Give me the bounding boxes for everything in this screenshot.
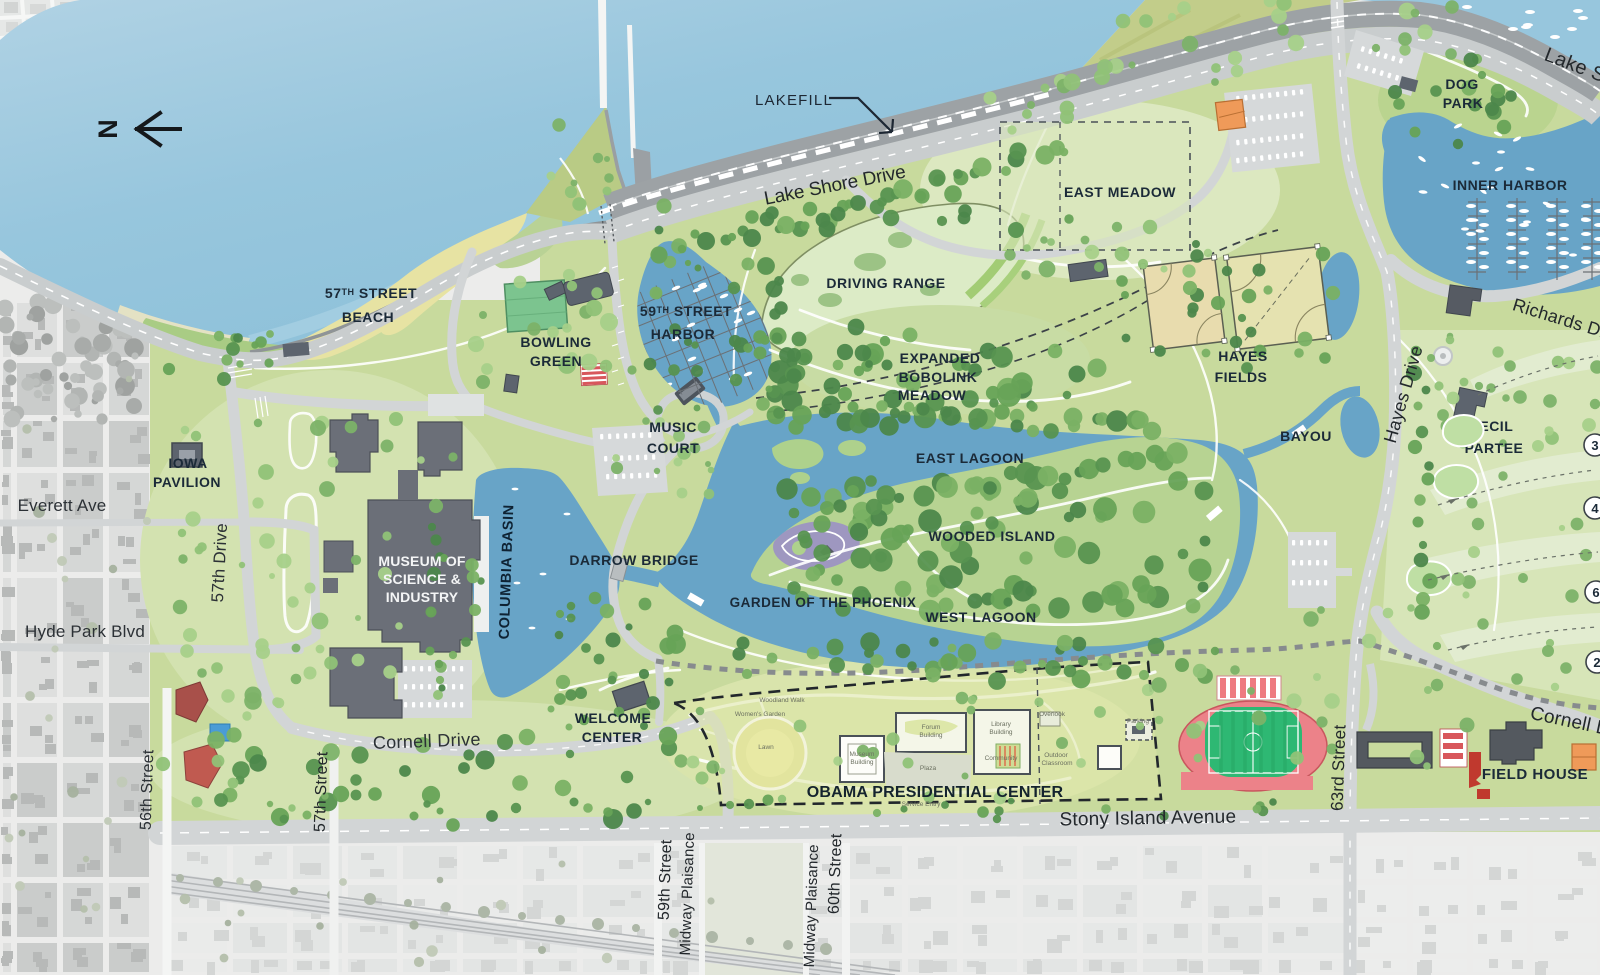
svg-text:BAYOU: BAYOU [1280, 428, 1332, 444]
svg-text:Building: Building [989, 729, 1013, 736]
svg-text:HARBOR: HARBOR [651, 326, 715, 342]
svg-text:EXPANDED: EXPANDED [900, 350, 981, 366]
svg-text:EAST LAGOON: EAST LAGOON [916, 450, 1024, 466]
svg-text:Everett Ave: Everett Ave [18, 496, 107, 515]
svg-text:WELCOME: WELCOME [575, 710, 652, 726]
svg-text:IOWA: IOWA [168, 455, 207, 471]
svg-text:LAKEFILL: LAKEFILL [755, 92, 833, 109]
svg-text:FIELDS: FIELDS [1215, 369, 1268, 385]
svg-text:6: 6 [1592, 585, 1599, 600]
svg-text:FIELD HOUSE: FIELD HOUSE [1482, 766, 1588, 783]
svg-text:3: 3 [1591, 438, 1598, 453]
svg-text:Women's Garden: Women's Garden [735, 711, 786, 718]
svg-text:CENTER: CENTER [582, 729, 643, 745]
svg-text:Lawn: Lawn [758, 744, 774, 751]
svg-text:BOWLING: BOWLING [520, 334, 591, 350]
svg-text:Woodland Walk: Woodland Walk [759, 697, 805, 704]
svg-text:Community: Community [985, 755, 1019, 762]
svg-text:Plaza: Plaza [920, 765, 937, 772]
svg-text:56th Street: 56th Street [138, 749, 158, 830]
svg-text:Classroom: Classroom [1041, 760, 1072, 767]
svg-text:BOBOLINK: BOBOLINK [899, 369, 978, 385]
svg-text:Museum: Museum [850, 751, 875, 758]
svg-text:MEADOW: MEADOW [898, 387, 967, 403]
svg-text:Overlook: Overlook [1039, 711, 1066, 718]
svg-text:WEST LAGOON: WEST LAGOON [925, 609, 1036, 625]
svg-text:PAVILION: PAVILION [153, 474, 221, 490]
svg-text:N: N [93, 119, 123, 139]
svg-text:Outdoor: Outdoor [1044, 752, 1068, 759]
svg-text:PARK: PARK [1443, 95, 1484, 111]
svg-text:MUSIC: MUSIC [649, 419, 697, 435]
svg-text:2: 2 [1593, 655, 1600, 670]
svg-text:Hyde Park Blvd: Hyde Park Blvd [25, 622, 145, 641]
svg-text:WOODED ISLAND: WOODED ISLAND [928, 528, 1055, 544]
svg-text:EAST MEADOW: EAST MEADOW [1064, 184, 1176, 200]
svg-text:BEACH: BEACH [342, 309, 394, 325]
svg-text:4: 4 [1591, 501, 1599, 516]
svg-text:MUSEUM OF: MUSEUM OF [378, 553, 466, 569]
svg-text:Parking: Parking [1127, 718, 1149, 725]
svg-text:60th Street: 60th Street [826, 833, 846, 914]
svg-text:DRIVING RANGE: DRIVING RANGE [826, 275, 945, 291]
svg-text:57th Street: 57th Street [312, 751, 332, 832]
svg-text:Forum: Forum [922, 724, 941, 731]
svg-text:GARDEN OF THE PHOENIX: GARDEN OF THE PHOENIX [730, 595, 917, 610]
svg-text:OBAMA PRESIDENTIAL CENTER: OBAMA PRESIDENTIAL CENTER [807, 784, 1064, 801]
svg-text:HAYES: HAYES [1218, 348, 1267, 364]
svg-text:DARROW BRIDGE: DARROW BRIDGE [569, 552, 698, 568]
svg-text:Cornell Drive: Cornell Drive [373, 729, 482, 753]
svg-text:INDUSTRY: INDUSTRY [386, 589, 459, 605]
svg-text:Building: Building [919, 732, 943, 739]
svg-text:SCIENCE &: SCIENCE & [383, 571, 461, 587]
svg-text:Building: Building [850, 759, 874, 766]
svg-text:COURT: COURT [647, 440, 699, 456]
svg-text:Service Entry: Service Entry [902, 801, 941, 808]
svg-text:57TH STREET: 57TH STREET [325, 285, 417, 301]
svg-text:Stony Island Avenue: Stony Island Avenue [1059, 806, 1236, 830]
svg-text:59TH STREET: 59TH STREET [640, 303, 732, 319]
svg-text:INNER HARBOR: INNER HARBOR [1453, 177, 1568, 193]
svg-text:GREEN: GREEN [530, 353, 582, 369]
svg-text:59th Street: 59th Street [656, 839, 676, 920]
svg-text:63rd Street: 63rd Street [1328, 724, 1350, 811]
svg-text:DOG: DOG [1445, 76, 1478, 92]
svg-text:Library: Library [991, 721, 1012, 728]
